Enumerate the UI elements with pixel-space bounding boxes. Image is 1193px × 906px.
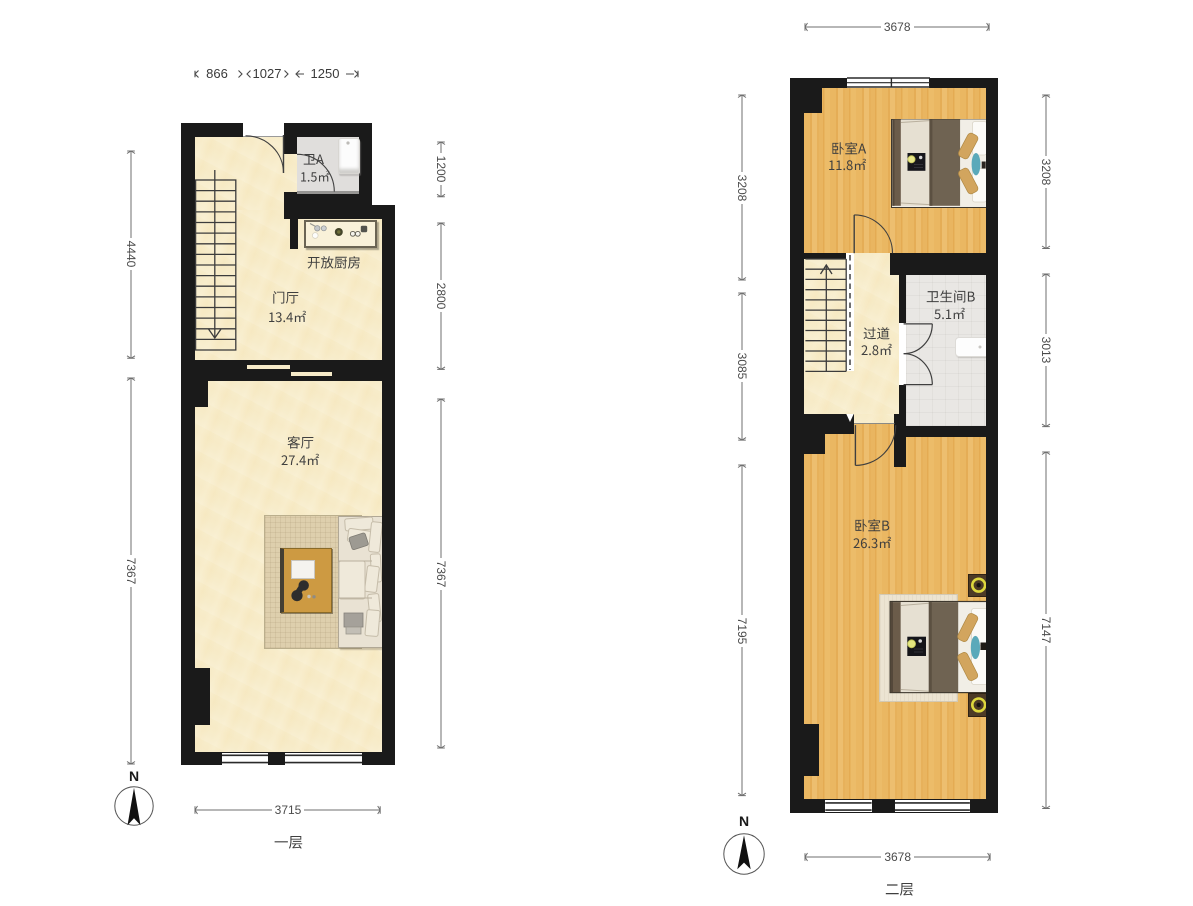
svg-text:866: 866 xyxy=(206,66,228,81)
svg-text:N: N xyxy=(738,813,748,829)
svg-text:1027: 1027 xyxy=(253,66,282,81)
svg-text:1250: 1250 xyxy=(311,66,340,81)
svg-text:N: N xyxy=(129,768,139,784)
